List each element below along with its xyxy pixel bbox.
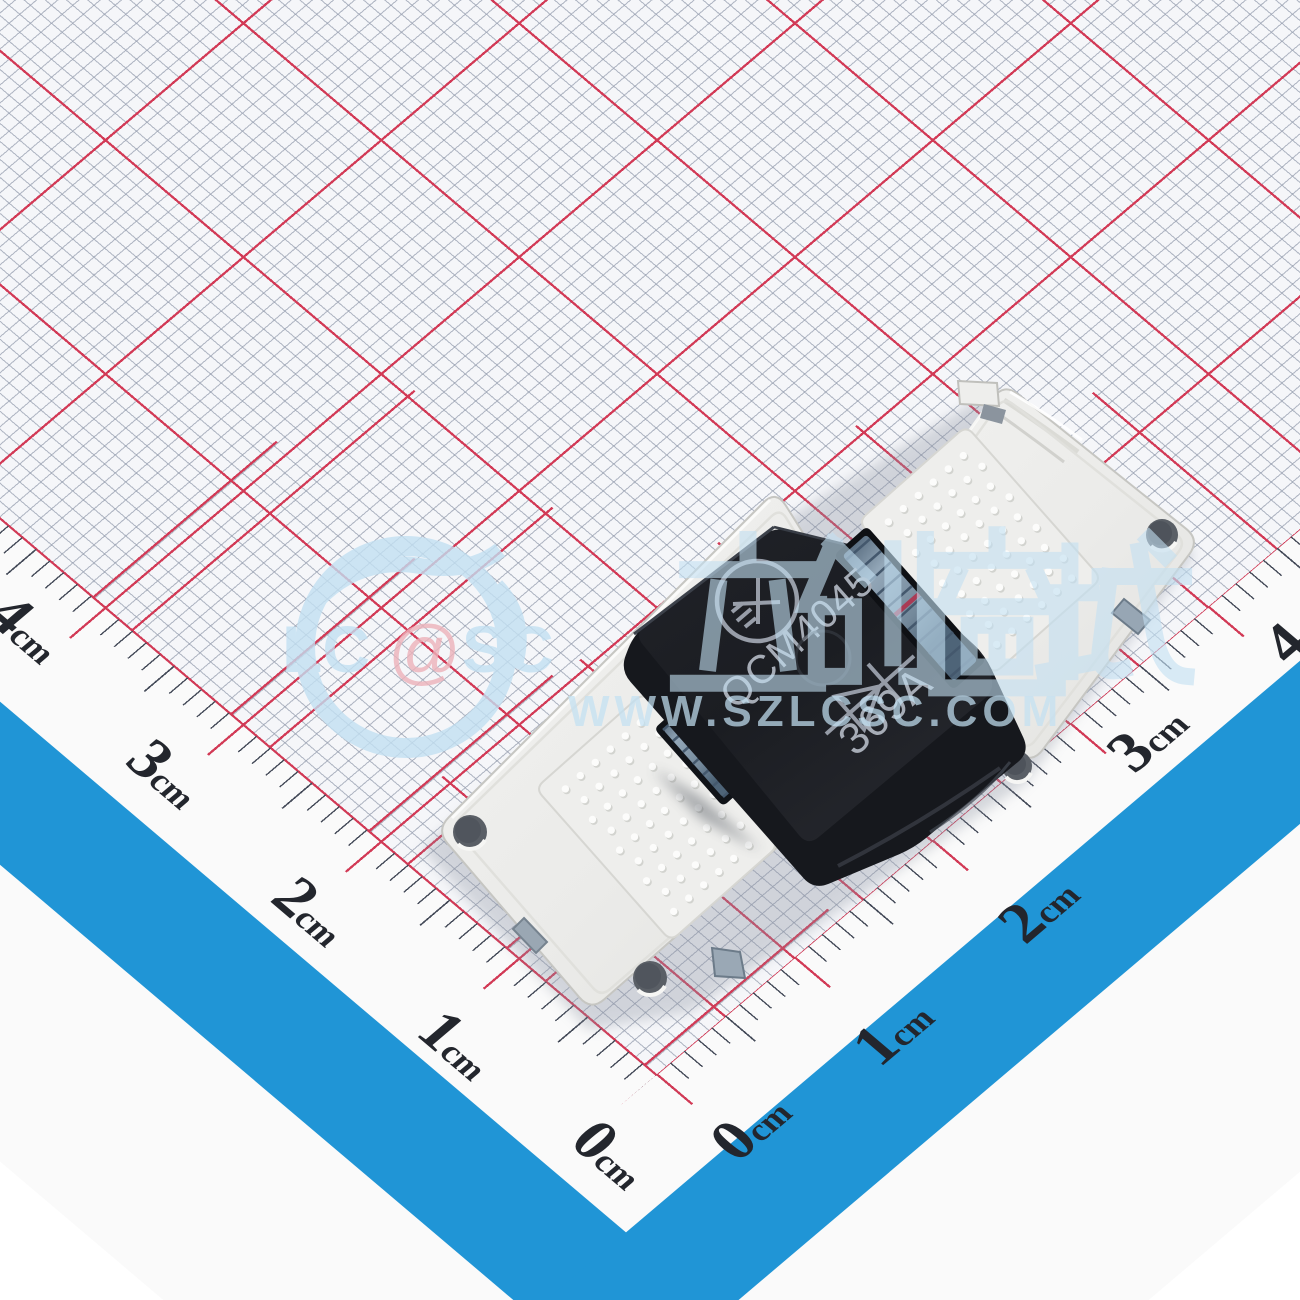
svg-text:LC: LC — [282, 612, 370, 686]
svg-text:@: @ — [388, 612, 461, 692]
svg-text:SC: SC — [462, 612, 554, 686]
